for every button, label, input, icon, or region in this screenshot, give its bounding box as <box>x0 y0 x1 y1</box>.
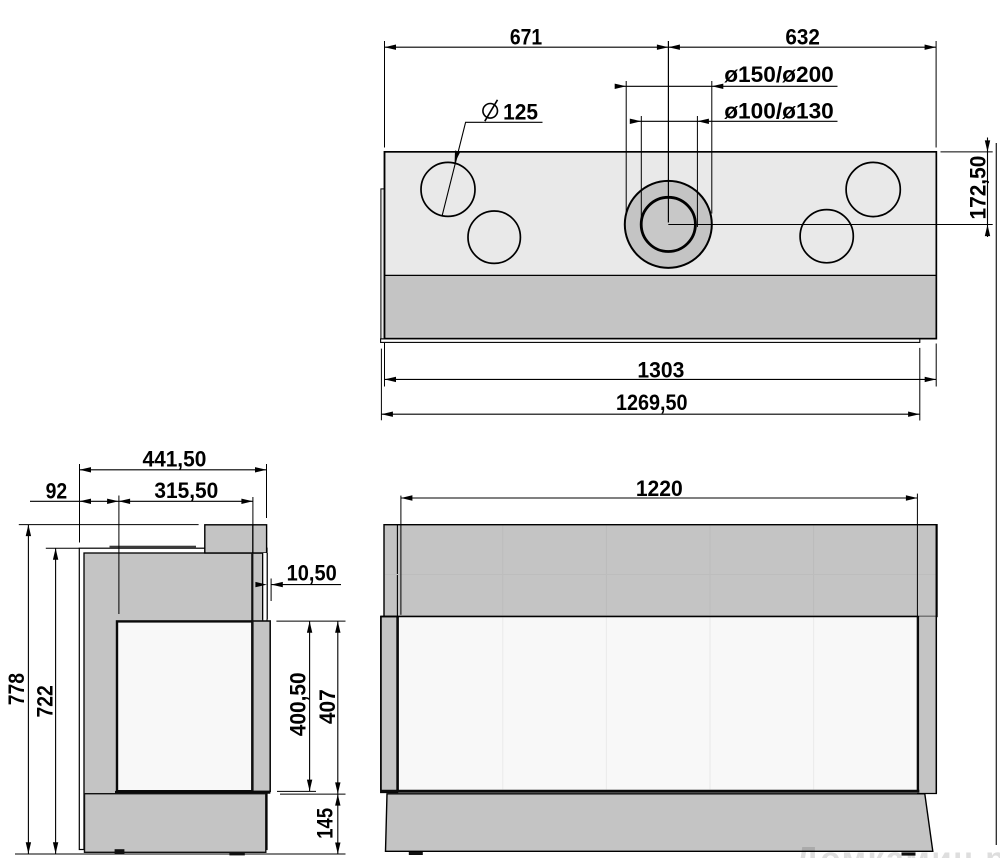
svg-text:441,50: 441,50 <box>142 447 206 472</box>
svg-text:Домкамин.ру: Домкамин.ру <box>795 840 1000 858</box>
svg-text:632: 632 <box>785 25 820 50</box>
svg-text:722: 722 <box>33 685 57 717</box>
svg-text:778: 778 <box>5 673 29 705</box>
svg-text:1269,50: 1269,50 <box>616 391 688 415</box>
svg-text:671: 671 <box>510 25 542 49</box>
svg-text:ø150/ø200: ø150/ø200 <box>724 62 834 87</box>
svg-text:145: 145 <box>314 808 338 839</box>
svg-text:ø100/ø130: ø100/ø130 <box>724 99 834 124</box>
svg-text:315,50: 315,50 <box>154 478 218 503</box>
svg-text:92: 92 <box>46 479 68 503</box>
svg-text:125: 125 <box>503 100 538 125</box>
svg-text:172,50: 172,50 <box>966 156 991 220</box>
svg-text:1303: 1303 <box>637 357 684 383</box>
svg-text:400,50: 400,50 <box>286 672 311 736</box>
svg-text:10,50: 10,50 <box>287 562 337 586</box>
svg-text:407: 407 <box>316 689 341 724</box>
svg-text:1220: 1220 <box>636 475 683 501</box>
